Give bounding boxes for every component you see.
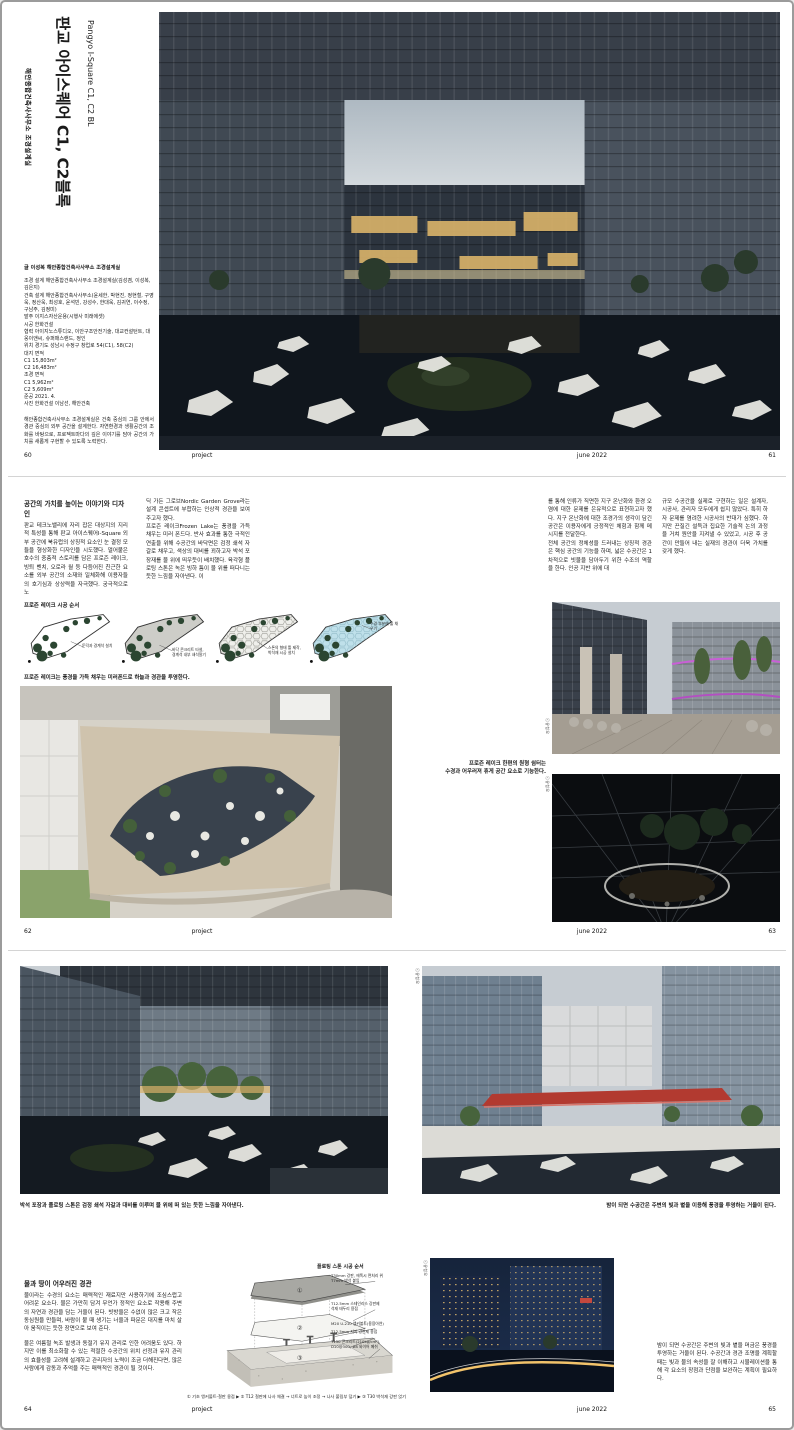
article-column-2: 딕 가든 그로브Nordic Garden Grove라는 설계 콘셉트에 부합… (146, 498, 250, 582)
credit-line: 위치 경기도 성남시 수정구 창업로 54(C1), 58(C2) (24, 343, 154, 350)
plate-mark: ③ (297, 1355, 303, 1362)
spread-divider (8, 950, 786, 951)
article-column-3: 를 통해 인류가 직면한 지구 온난화와 환경 오염에 대한 문제를 은유적으로… (548, 498, 652, 573)
article-column-1: 공간의 가치를 높이는 이야기와 디자인 판교 테크노밸리에 자리 잡은 대상지… (24, 498, 128, 597)
magazine-scan: 해안종합건축사사무소 조경설계실 판교 아이스퀘어 C1, C2블록 Pangy… (0, 0, 794, 1430)
footer-issue-label: june 2022 (532, 928, 652, 935)
credit-line: 발주 이지스자산운용(시행사 미래에셋) (24, 314, 154, 321)
page-number-left: 62 (24, 928, 32, 935)
credit-line: 시공 한화건설 (24, 322, 154, 329)
main-courtyard-photo (159, 12, 780, 450)
plaza-canopy-photo (422, 966, 780, 1194)
article-column-4: 규모 수공간을 실제로 구현하는 일은 설계자, 시공사, 관리자 모두에게 쉽… (662, 498, 768, 557)
lake-plan-water-diagram (306, 610, 396, 666)
plate-mark: ② (297, 1325, 303, 1332)
photo-credit: ⓒ유청오 (422, 1260, 428, 1276)
plate-mark: ① (297, 1287, 303, 1294)
sequence-step-4: 수경 부분에 물 채우기 (306, 610, 396, 670)
lake-plan-outline-diagram (24, 610, 114, 666)
sequence-step-2: 바닥 콘크리트 타설, 경계석 내부 쇄석깔기 (118, 610, 208, 670)
lake-plan-concrete-diagram (118, 610, 208, 666)
detail-label: M20 U-210 앵커볼트(용융아연) (331, 1322, 417, 1327)
article-heading: 공간의 가치를 높이는 이야기와 디자인 (24, 498, 128, 518)
credit-line: C1 5,962m² (24, 380, 154, 387)
photo-credit: ⓒ유청오 (544, 718, 550, 734)
page-number-right: 65 (768, 1406, 776, 1413)
essay-paragraph: 물은 여름철 녹조 발생과 동절기 유지 관리로 인한 어려움도 있다. 하지만… (24, 1340, 182, 1373)
detail-sequence-caption: ① 기초 앵커볼트-철판 용접 ▶ ② T12 철판에 나사 체결 → 너트로 … (187, 1394, 527, 1400)
detail-label: T150 콘크리트(210kg/cm²), D10@300, #8 와이어 메쉬 (331, 1340, 417, 1349)
article-text: 딕 가든 그로브Nordic Garden Grove라는 설계 콘셉트에 부합… (146, 498, 250, 582)
article-title-en: Pangyo I-Square C1, C2 BL (86, 20, 94, 127)
sequence-step-1: 둔덕과 경계석 설치 (24, 610, 114, 670)
detail-label: T30mm 강판, 에폭시 면처리 위 T7mm 박석 붙임 (331, 1274, 417, 1283)
author-lead: 글 이성복 해안종합건축사사무소 조경설계실 (24, 264, 154, 271)
credit-line: 협력 아이지노스튜디오, 이안구조안전기술, 대교컨설턴트, 대웅이앤씨, 슈퍼… (24, 329, 154, 344)
credit-line: C2 5,609m² (24, 387, 154, 394)
credit-line: 조경 면적 (24, 372, 154, 379)
credit-line: C1 15,803m² (24, 358, 154, 365)
detail-label: T12.5mm 지지 강판제 용접 (331, 1330, 417, 1335)
night-led-photo (430, 1258, 614, 1392)
article-text: 판교 테크노밸리에 자리 잡은 대상지의 지리적 특성을 통해 판교 아이스퀘어… (24, 522, 128, 597)
article-text: 규모 수공간을 실제로 구현하는 일은 설계자, 시공사, 관리자 모두에게 쉽… (662, 498, 768, 557)
article-title-kr: 판교 아이스퀘어 C1, C2블록 (54, 16, 70, 207)
project-credits: 글 이성복 해안종합건축사사무소 조경설계실 조경 설계 해안종합건축사사무소 … (24, 264, 154, 447)
step-label: 바닥 콘크리트 타설, 경계석 내부 쇄석깔기 (172, 648, 210, 657)
lake-plan-paving-diagram (212, 610, 302, 666)
detail-diagram-title: 플로팅 스톤 시공 순서 (317, 1263, 364, 1270)
credit-line: 대지 면적 (24, 351, 154, 358)
left-photo-caption: 박석 포장과 플로팅 스톤은 검정 쇄석 자갈과 대비를 이루며 물 위에 떠 … (20, 1202, 340, 1210)
courtyard-day-photo (20, 966, 388, 1194)
floating-stone-detail: ① ② ③ T30mm 강판, (187, 1272, 417, 1392)
sequence-step-3: 스톤의 형태 틀 제작, 박석재 시공 설치 (212, 610, 302, 670)
credit-line: 건축 설계 해안종합건축사사무소(윤세한, 박현진, 정현철, 구영욱, 정산욱… (24, 293, 154, 315)
night-deck-photo (552, 774, 780, 922)
essay-paragraph: 물이라는 수경의 요소는 매력적인 재료지만 사용하기에 조심스럽고 어려운 요… (24, 1292, 182, 1334)
photo-credit: ⓒ유청오 (544, 776, 550, 792)
right-photo-caption: 밤이 되면 수공간은 주변의 빛과 볕을 이용해 풍경을 투영하는 거울이 된다… (456, 1202, 776, 1210)
credit-line: 사진 한화건설 이남선, 해안건축 (24, 401, 154, 408)
footer-section-label: project (142, 1406, 262, 1413)
aerial-photo-caption: 프로즌 레이크는 풍경을 가득 채우는 미러폰드로 하늘과 경관을 투영한다. (24, 674, 384, 682)
deck-photo-caption: 프로즌 레이크 한편의 원형 쉼터는 수경과 어우러져 휴게 공간 요소로 기능… (422, 760, 546, 776)
outro-block: 밤이 되면 수공간은 주변의 빛과 볕을 머금은 풍경을 투영하는 거울이 된다… (657, 1342, 777, 1384)
sequence-diagram-row: 둔덕과 경계석 설치 바닥 콘크리트 타설, 경계석 내부 쇄석깔기 (24, 610, 392, 670)
footer-section-label: project (142, 452, 262, 459)
step-label: 수경 부분에 물 채우기 (370, 622, 400, 631)
page-number-left: 60 (24, 452, 32, 459)
step-label: 둔덕과 경계석 설치 (82, 644, 116, 649)
sequence-diagram-title: 프로즌 레이크 시공 순서 (24, 601, 79, 609)
photo-credit: ⓒ유청오 (414, 968, 420, 984)
outro-text: 밤이 되면 수공간은 주변의 빛과 볕을 머금은 풍경을 투영하는 거울이 된다… (657, 1342, 777, 1384)
credit-line: 조경 설계 해안종합건축사사무소 조경설계실(김성겸, 이성복, 김은지) (24, 278, 154, 293)
step-label: 스톤의 형태 틀 제작, 박석재 시공 설치 (268, 646, 304, 655)
page-number-right: 61 (768, 452, 776, 459)
detail-label: T12.5mm 스테인리스 강판제 석재 테두리 용접 (331, 1302, 417, 1311)
spread-divider (8, 476, 786, 477)
page-number-right: 63 (768, 928, 776, 935)
footer-issue-label: june 2022 (532, 1406, 652, 1413)
essay-block: 물과 땅이 어우러진 경관 물이라는 수경의 요소는 매력적인 재료지만 사용하… (24, 1278, 182, 1373)
footer-issue-label: june 2022 (532, 452, 652, 459)
aerial-courtyard-photo (20, 686, 392, 918)
article-text: 를 통해 인류가 직면한 지구 온난화와 환경 오염에 대한 문제를 은유적으로… (548, 498, 652, 573)
page-number-left: 64 (24, 1406, 32, 1413)
essay-heading: 물과 땅이 어우러진 경관 (24, 1278, 182, 1288)
firm-note: 해안종합건축사사무소 조경설계실은 건축 중심의 그룹 안에서 경관 중심의 외… (24, 417, 154, 447)
street-dusk-photo (552, 602, 780, 754)
office-byline: 해안종합건축사사무소 조경설계실 (24, 68, 34, 166)
footer-section-label: project (142, 928, 262, 935)
